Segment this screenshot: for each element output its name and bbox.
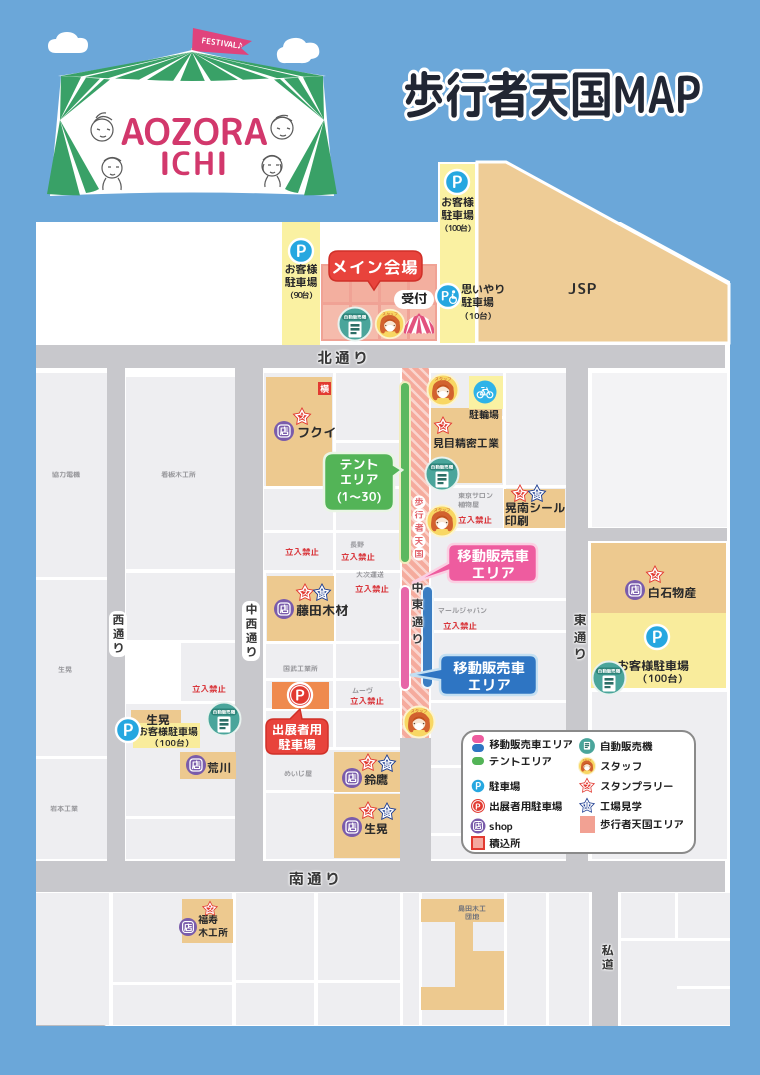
svg-text:スタンプラリー: スタンプラリー bbox=[600, 780, 674, 794]
svg-text:P: P bbox=[475, 800, 480, 812]
svg-text:駐車場: 駐車場 bbox=[489, 780, 521, 794]
svg-text:スタッフ: スタッフ bbox=[600, 760, 642, 774]
svg-text:自動販売機: 自動販売機 bbox=[600, 740, 653, 754]
svg-text:出展者用駐車場: 出展者用駐車場 bbox=[489, 800, 563, 814]
svg-text:ICHI: ICHI bbox=[159, 142, 228, 186]
svg-text:歩行者天国MAP: 歩行者天国MAP bbox=[403, 59, 701, 130]
svg-text:店: 店 bbox=[474, 822, 481, 832]
svg-text:shop: shop bbox=[489, 820, 514, 834]
svg-text:歩行者天国エリア: 歩行者天国エリア bbox=[600, 818, 684, 832]
svg-text:テントエリア: テントエリア bbox=[489, 755, 552, 769]
svg-text:積込所: 積込所 bbox=[489, 837, 521, 851]
svg-text:P: P bbox=[475, 779, 482, 793]
svg-text:工場見学: 工場見学 bbox=[600, 800, 642, 814]
svg-text:移動販売車エリア: 移動販売車エリア bbox=[489, 738, 573, 752]
